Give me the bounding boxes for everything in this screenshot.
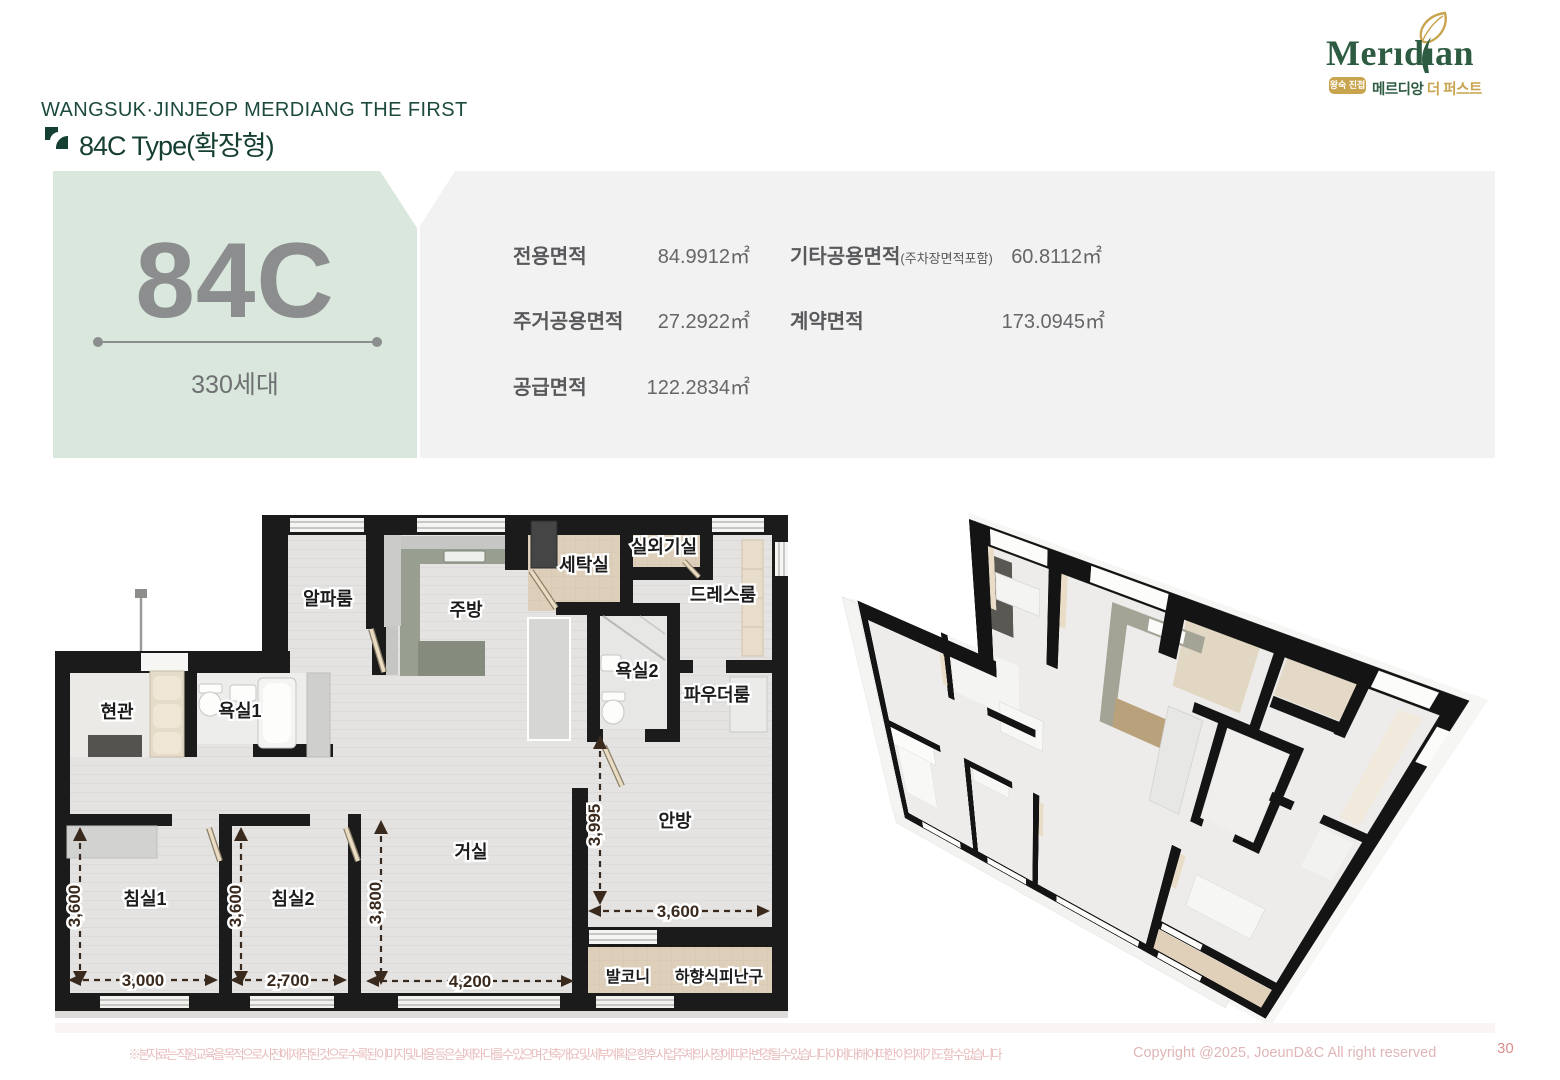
svg-text:하향식피난구: 하향식피난구: [675, 967, 764, 986]
svg-text:발코니: 발코니: [606, 968, 650, 986]
svg-text:4,200: 4,200: [449, 972, 492, 991]
svg-text:안방: 안방: [658, 811, 692, 831]
svg-text:욕실2: 욕실2: [615, 661, 658, 681]
svg-text:세탁실: 세탁실: [559, 555, 609, 575]
svg-text:침실1: 침실1: [123, 889, 166, 909]
svg-text:현관: 현관: [100, 702, 134, 722]
svg-text:실외기실: 실외기실: [631, 537, 697, 557]
svg-text:3,600: 3,600: [657, 902, 700, 921]
svg-text:파우더룸: 파우더룸: [684, 685, 750, 705]
svg-text:주방: 주방: [449, 600, 483, 620]
svg-text:알파룸: 알파룸: [303, 589, 353, 609]
svg-text:3,600: 3,600: [226, 885, 245, 928]
svg-text:3,600: 3,600: [65, 885, 84, 928]
svg-text:3,000: 3,000: [122, 971, 165, 990]
svg-text:3,800: 3,800: [366, 882, 385, 925]
svg-text:거실: 거실: [454, 842, 487, 862]
svg-text:2,700: 2,700: [267, 971, 310, 990]
svg-text:침실2: 침실2: [271, 889, 314, 909]
svg-text:욕실1: 욕실1: [218, 701, 261, 721]
svg-text:3,995: 3,995: [585, 804, 604, 847]
svg-text:드레스룸: 드레스룸: [690, 585, 756, 605]
